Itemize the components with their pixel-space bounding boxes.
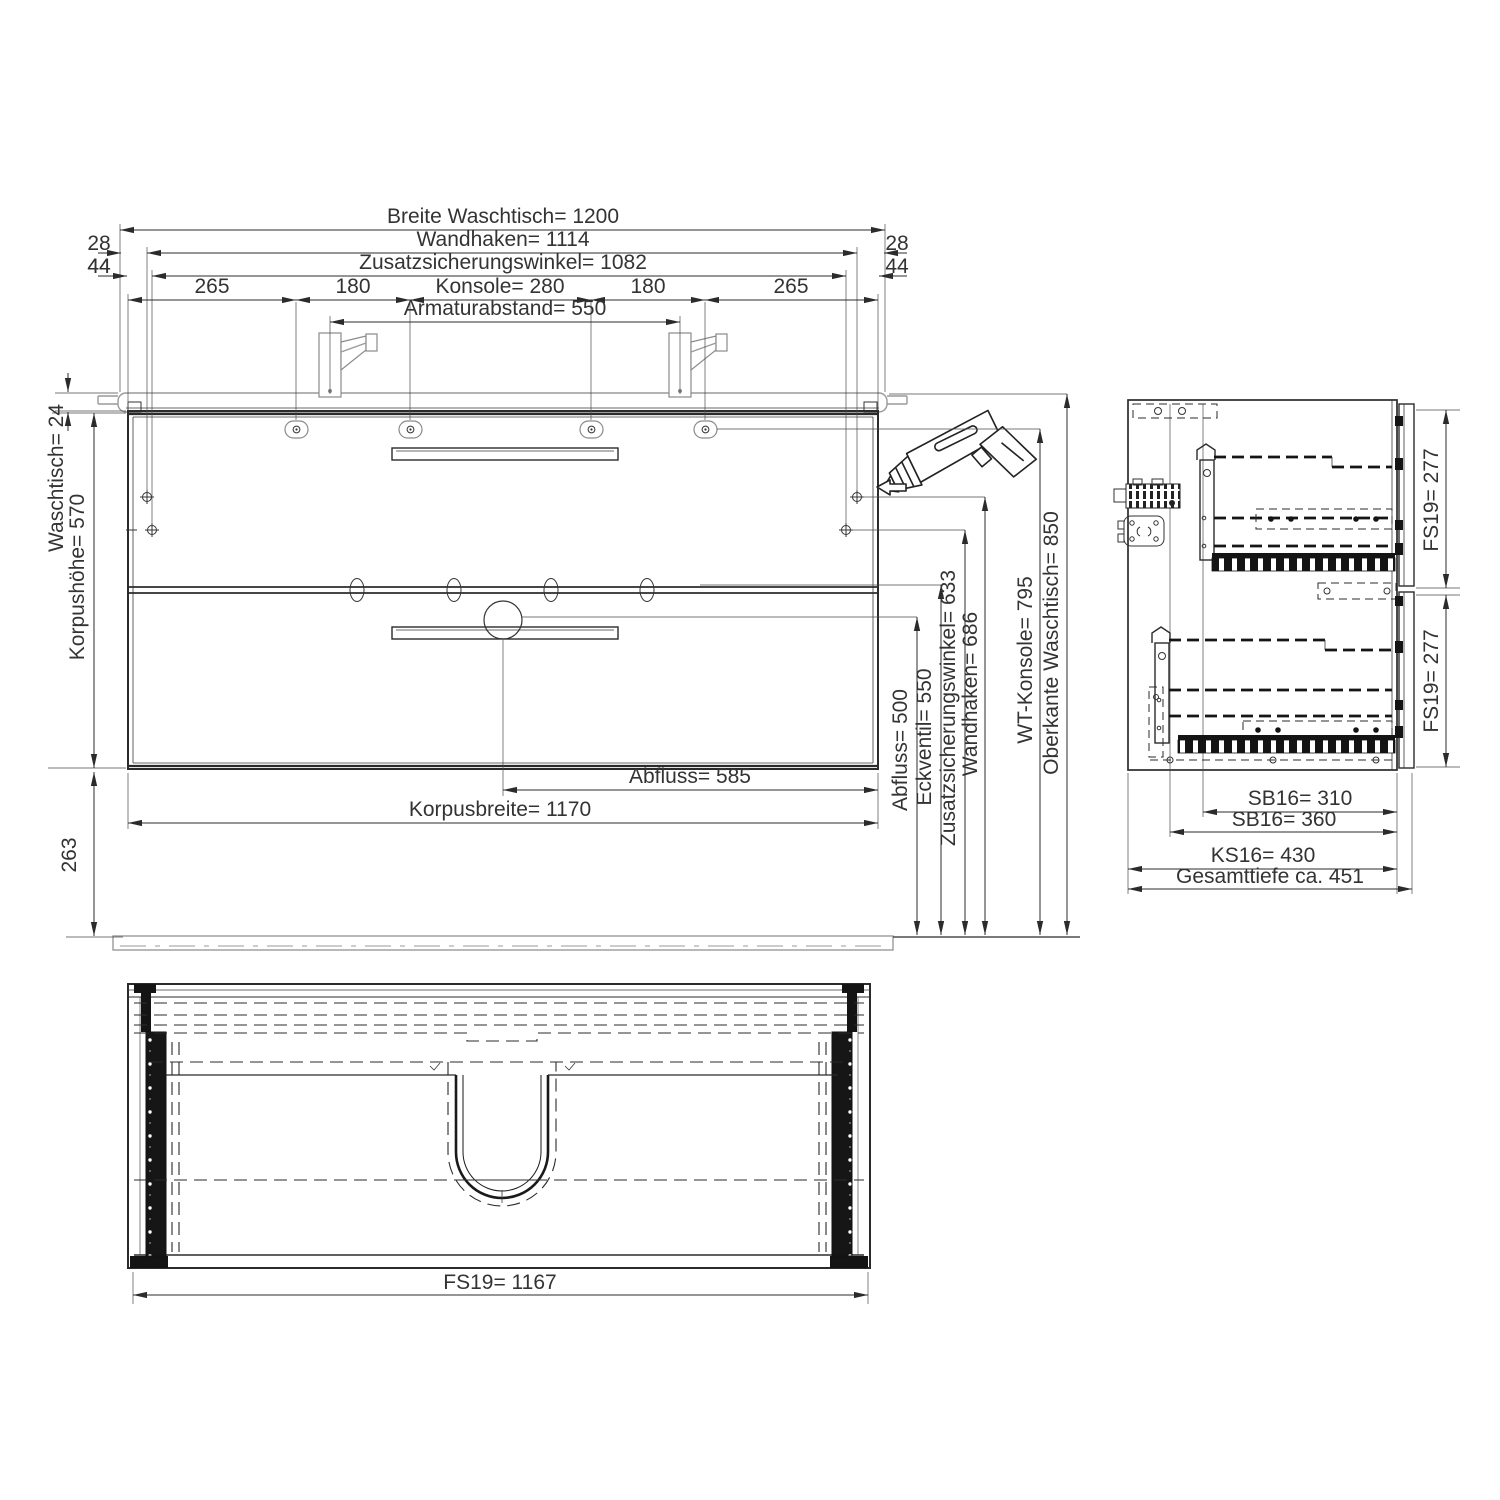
dim-zusatz-633: Zusatzsicherungswinkel= 633	[937, 570, 960, 846]
top-drawer-mechanism	[1197, 444, 1395, 571]
slide-rail-left	[146, 1032, 166, 1256]
dim-eckventil: Eckventil= 550	[913, 668, 936, 805]
plan-dims: FS19= 1167	[133, 1271, 868, 1304]
console-screw	[694, 421, 717, 438]
siphon-cutout	[448, 1062, 556, 1206]
vanity-technical-drawing: Breite Waschtisch= 1200 28 Wandhaken= 11…	[0, 0, 1500, 1500]
console-screw	[285, 421, 308, 438]
front-dims-bottom: Abfluss= 585 Korpusbreite= 1170	[128, 640, 878, 829]
dim-180-left: 180	[335, 275, 370, 298]
wall-hook-screw-right	[850, 490, 864, 504]
drain-hole	[484, 601, 522, 639]
dim-offset-28-right: 28	[885, 232, 908, 255]
dim-konsole: Konsole= 280	[435, 275, 564, 298]
plan-view	[128, 984, 870, 1268]
dim-263: 263	[58, 837, 81, 872]
svg-text:44: 44	[87, 255, 111, 278]
slide-rail-right	[832, 1032, 852, 1256]
drill-icon	[871, 401, 1039, 531]
dim-fs19-bottom: FS19= 277	[1420, 629, 1443, 732]
dim-ks16-430: KS16= 430	[1211, 844, 1316, 867]
mounting-plate	[1118, 516, 1164, 546]
reference-band	[113, 936, 893, 950]
dim-abfluss-500: Abfluss= 500	[889, 689, 912, 811]
console-screw	[399, 421, 422, 438]
side-dims: FS19= 277 FS19= 277 SB16= 310 SB16= 360 …	[1128, 410, 1460, 894]
console-screws	[285, 421, 717, 438]
dim-sb16-360: SB16= 360	[1232, 808, 1337, 831]
dim-zusatz-top: Zusatzsicherungswinkel= 1082	[359, 251, 647, 274]
dim-gesamttiefe: Gesamttiefe ca. 451	[1176, 865, 1364, 888]
dim-sb16-310: SB16= 310	[1248, 787, 1353, 810]
console-screw	[580, 421, 603, 438]
dim-180-right: 180	[630, 275, 665, 298]
dim-korpusbreite: Korpusbreite= 1170	[409, 798, 591, 821]
bottom-drawer-mechanism	[1149, 627, 1395, 763]
safety-bracket-screw-left	[126, 523, 159, 537]
front-dims-right: Abfluss= 500 Eckventil= 550 Zusatzsicher…	[522, 394, 1080, 937]
drawer-handle-bottom	[392, 627, 618, 639]
dim-offset-28-left: 28	[87, 232, 110, 255]
faucet-right	[669, 333, 727, 397]
safety-bracket-screw-right	[839, 523, 853, 537]
wall-hook-tab-left	[98, 396, 118, 404]
dim-wt-konsole: WT-Konsole= 795	[1014, 576, 1037, 744]
front-dims-top: Breite Waschtisch= 1200 28 Wandhaken= 11…	[87, 205, 909, 524]
drawing-canvas: Breite Waschtisch= 1200 28 Wandhaken= 11…	[0, 0, 1500, 1500]
dim-offset-44-right: 44	[885, 255, 909, 278]
faucet-left	[319, 333, 377, 397]
dim-wandhaken-top: Wandhaken= 1114	[417, 228, 590, 251]
dim-fs19-1167: FS19= 1167	[443, 1271, 556, 1294]
divider-holes	[350, 579, 654, 602]
front-dims-left: Waschtisch= 24 Korpushöhe= 570 263	[45, 373, 126, 937]
wall-rail	[1133, 404, 1217, 418]
dim-oberkante: Oberkante Waschtisch= 850	[1040, 511, 1063, 775]
dim-breite-waschtisch: Breite Waschtisch= 1200	[387, 205, 619, 228]
washbasin-slab	[118, 393, 887, 412]
dim-abfluss-585: Abfluss= 585	[629, 765, 751, 788]
dim-265-left: 265	[194, 275, 229, 298]
drawer-handle-top	[392, 448, 618, 460]
dim-korpushoehe: Korpushöhe= 570	[66, 494, 89, 660]
wall-hook-tab-right	[887, 396, 907, 404]
side-view	[1114, 400, 1414, 837]
dim-armaturabstand: Armaturabstand= 550	[404, 297, 607, 320]
dim-wandhaken-686: Wandhaken= 686	[959, 612, 982, 776]
dim-fs19-top: FS19= 277	[1420, 448, 1443, 551]
dim-waschtisch-24: Waschtisch= 24	[45, 404, 68, 552]
front-view	[98, 333, 907, 950]
dim-265-right: 265	[773, 275, 808, 298]
mid-plate	[1318, 583, 1396, 599]
